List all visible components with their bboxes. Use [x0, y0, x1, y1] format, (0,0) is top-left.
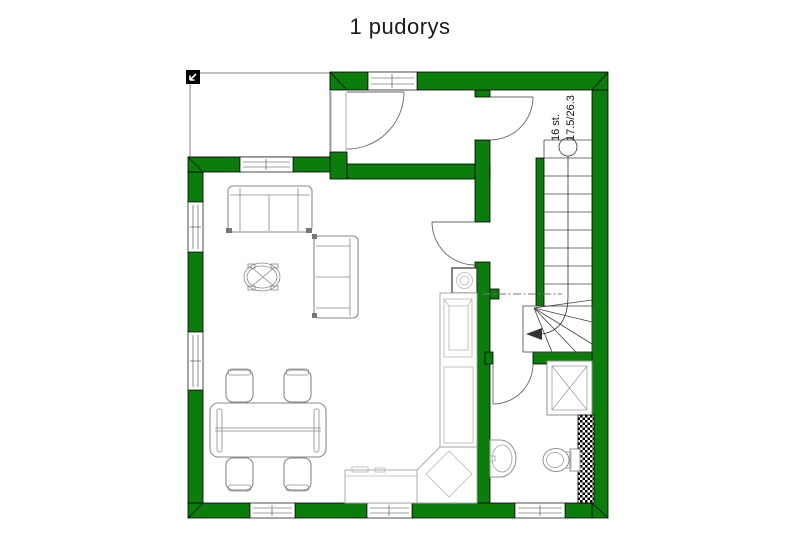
chair: [226, 458, 253, 491]
floor-plan-page: 1 pudorys: [0, 0, 800, 535]
door-arc: [331, 92, 404, 152]
chair: [226, 369, 253, 402]
window: [188, 332, 203, 390]
chair: [284, 369, 311, 402]
toilet: [543, 449, 580, 472]
shower: [547, 361, 592, 415]
door-arc: [432, 222, 475, 265]
dining-table: [210, 403, 326, 457]
stove: [452, 268, 477, 293]
stair-direction-arrow: [526, 328, 542, 340]
kitchen-counter-right: [440, 293, 477, 447]
window: [240, 157, 293, 172]
stair-rise-run-label: 17.5/26.3: [565, 95, 577, 141]
north-arrow-icon: [186, 70, 200, 84]
coffee-table: [244, 263, 280, 291]
sofa-top: [226, 186, 312, 233]
dining-set: [210, 369, 326, 491]
floor-plan-drawing: 16 st. 17.5/26.3: [0, 0, 800, 535]
kitchen-corner-unit: [417, 447, 477, 503]
stair-steps-label: 16 st.: [550, 114, 562, 141]
porch: [190, 73, 330, 157]
washbasin: [490, 440, 516, 477]
window: [188, 202, 203, 252]
doors: [331, 92, 533, 404]
kitchen-counter-bottom: [345, 467, 417, 503]
door-arc: [493, 364, 533, 404]
living-room-furniture: [226, 186, 358, 318]
window: [367, 503, 412, 518]
window: [515, 503, 565, 518]
sofa-right: [312, 234, 358, 318]
window: [250, 503, 295, 518]
window: [368, 72, 417, 90]
kitchen: [345, 268, 477, 503]
bathroom: [490, 361, 594, 503]
chair: [284, 458, 311, 491]
door-arc: [490, 97, 533, 140]
